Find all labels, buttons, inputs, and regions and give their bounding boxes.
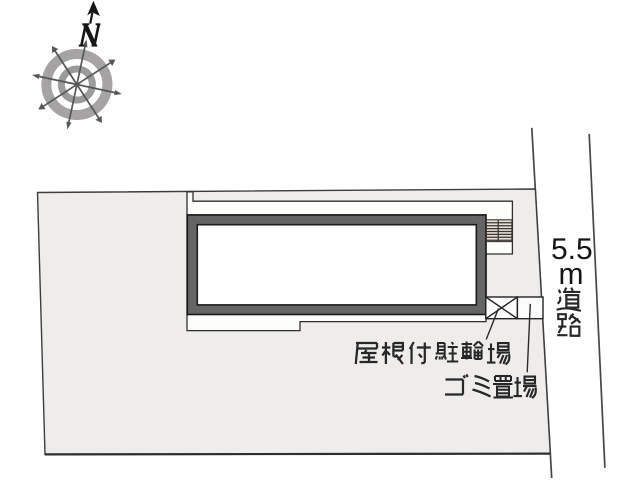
- svg-text:m: m: [559, 258, 584, 291]
